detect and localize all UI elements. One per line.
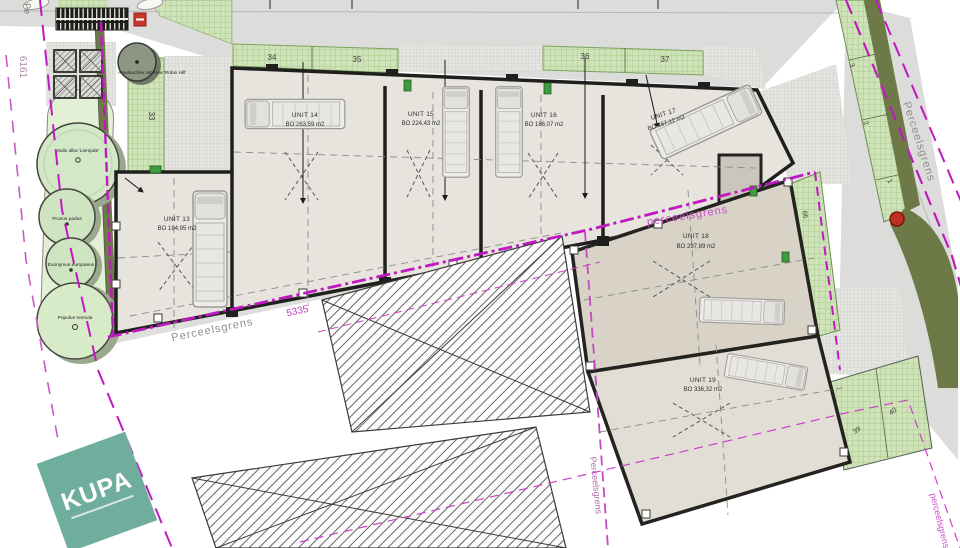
tree-marker xyxy=(69,268,73,272)
green-strip-36-37 xyxy=(543,46,703,75)
paving-zone xyxy=(398,44,543,72)
unit18-label: UNIT 18 xyxy=(683,233,709,240)
plant-amelanchier-label: Amelanchier arborea 'Robin Hill' xyxy=(118,70,186,76)
dim-36: 36 xyxy=(581,52,590,61)
hatched-building-bottom xyxy=(192,427,566,548)
unit14-label: UNIT 14 xyxy=(292,112,318,119)
unit15-label: UNIT 15 xyxy=(408,111,434,118)
unit13-label: UNIT 13 xyxy=(164,216,190,223)
truck-unit13 xyxy=(193,191,227,307)
unit14-area: BO 263,59 m2 xyxy=(286,122,325,128)
plant-prunus-label: Prunus padus xyxy=(52,216,82,222)
dim-37: 37 xyxy=(661,55,670,64)
unit19-label: UNIT 19 xyxy=(690,377,716,384)
plant-euonymus-label: Euonymus europaeus xyxy=(48,262,95,268)
dim-6161: 6161 xyxy=(17,56,28,79)
site-plan-screenshot: UNIT 13 BO 194,95 m2 UNIT 14 BO 263,59 m… xyxy=(0,0,960,548)
kupa-logo: KUPA xyxy=(37,432,157,548)
plant-populus-label: Populus tremula xyxy=(58,315,93,321)
site-plan-drawing: UNIT 13 BO 194,95 m2 UNIT 14 BO 263,59 m… xyxy=(0,0,960,548)
tree-crown xyxy=(37,283,113,359)
dim-34: 34 xyxy=(268,53,277,62)
unit16-label: UNIT 16 xyxy=(531,112,557,119)
dim-5335: 5335 xyxy=(285,304,309,319)
dim-35: 35 xyxy=(353,55,362,64)
tree-amelanchier xyxy=(118,43,161,85)
unit13-area: BO 194,95 m2 xyxy=(158,226,197,232)
unit18-area: BO 297,89 m2 xyxy=(677,244,716,250)
dim-33: 33 xyxy=(147,112,156,121)
unit-19-floor xyxy=(588,336,850,524)
truck-unit16 xyxy=(496,87,523,177)
pe-partial: Pe xyxy=(22,3,32,14)
perceelsgrens-corner: perceelsgrens xyxy=(928,492,952,548)
truck-unit18 xyxy=(699,297,784,325)
unit16-area: BO 186,07 m2 xyxy=(525,122,564,128)
unit19-area: BO 336,32 m2 xyxy=(684,387,723,393)
truck-unit15 xyxy=(443,87,470,177)
red-marker-icon xyxy=(890,212,904,226)
plant-salix-label: Salix alba 'Liempde' xyxy=(57,148,99,154)
unit15-area: BO 224,43 m2 xyxy=(402,121,441,127)
tree-populus xyxy=(37,283,121,364)
tree-marker xyxy=(135,60,139,64)
